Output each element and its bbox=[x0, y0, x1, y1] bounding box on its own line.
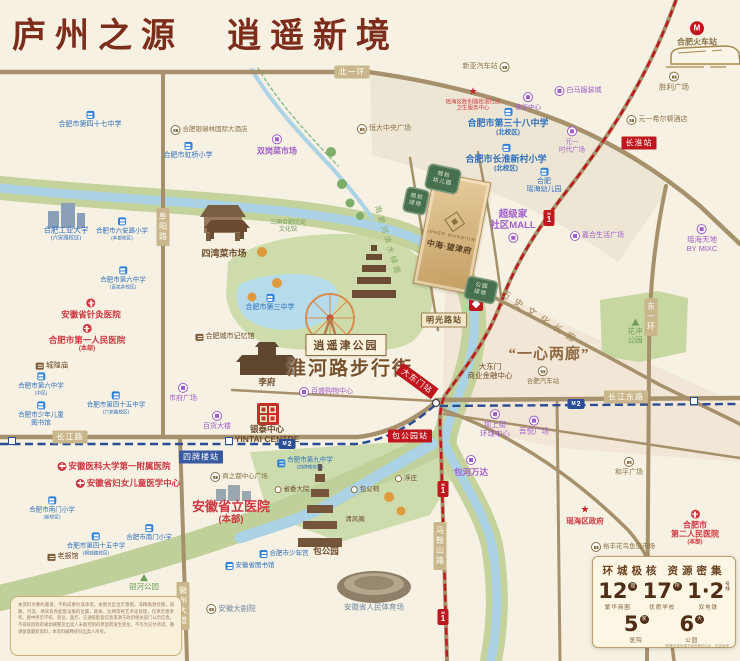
hospital-cross-icon bbox=[691, 510, 700, 519]
school-icon bbox=[92, 532, 100, 540]
map-poi: 安徽医科大学第一附属医院 bbox=[57, 461, 170, 471]
school-icon bbox=[266, 294, 274, 302]
poi-label: 包公园 bbox=[313, 546, 339, 556]
poi-label: 合肥市六安路小学(本部校区) bbox=[96, 227, 148, 240]
map-poi: 合肥市少年宫 bbox=[260, 550, 309, 558]
school-icon bbox=[504, 108, 512, 116]
plaza-icon bbox=[624, 457, 634, 467]
metro-station-marker bbox=[225, 437, 233, 445]
map-poi: 清风阁 bbox=[345, 516, 365, 524]
poi-label: 吾悦广场 bbox=[519, 428, 549, 437]
poi-label: 恒大中央广场 bbox=[369, 125, 411, 133]
mall-icon bbox=[299, 387, 309, 397]
museum-icon bbox=[196, 334, 204, 341]
poi-label: 元一时代广场 bbox=[559, 138, 585, 153]
poi-label: 安徽省妇女儿童医学中心 bbox=[87, 478, 181, 488]
metro-line-2-badge: M2 bbox=[568, 399, 585, 409]
map-poi: 合肥市第六中学(中区) bbox=[18, 372, 64, 395]
mall-icon bbox=[508, 233, 518, 243]
plaza-icon bbox=[669, 72, 679, 82]
poi-label: 合肥市第六中学(百花井校区) bbox=[100, 276, 146, 289]
map-poi: 合肥市少年儿童图书馆 bbox=[18, 401, 64, 426]
page-title: 庐州之源 逍遥新境 bbox=[12, 8, 399, 57]
school-icon bbox=[145, 524, 153, 532]
poi-label: 商之都中心广场 bbox=[222, 473, 268, 481]
map-poi: 合肥市六安路小学(本部校区) bbox=[96, 217, 148, 240]
poi-label: 合肥市第四十五中学(六安路校区) bbox=[87, 401, 146, 414]
map-poi: 商之都中心广场 bbox=[210, 472, 268, 482]
mall-icon bbox=[466, 455, 476, 465]
road-label: 东一环 bbox=[645, 298, 658, 336]
tree-icon bbox=[140, 574, 148, 581]
poi-label: 超级家社区MALL bbox=[490, 209, 535, 231]
poi-dot-icon bbox=[275, 487, 282, 494]
stats-panel: 环城极核 资源密集 12座繁华商圈17所优质学校1·2号线双地铁 5家医院6大公… bbox=[592, 556, 736, 648]
school-icon bbox=[502, 144, 510, 152]
poi-label: 安徽省图书馆 bbox=[236, 562, 275, 570]
map-poi: 白马服装城 bbox=[555, 86, 602, 96]
metro-station-label: 长淮站 bbox=[622, 137, 657, 150]
metro-station-label: 四牌楼站 bbox=[179, 451, 223, 464]
stat-label: 医院 bbox=[630, 636, 643, 644]
stat-label: 公园 bbox=[685, 636, 698, 644]
map-poi: 安徽省人民体育场 bbox=[344, 604, 404, 613]
metro-station-label: 明光路站 bbox=[421, 313, 467, 328]
map-poi: ★瑶海区政府 bbox=[566, 506, 604, 527]
map-poi: 包河万达 bbox=[454, 455, 488, 477]
poi-label: 裕丰花鸟鱼虫市场 bbox=[603, 543, 655, 551]
school-icon bbox=[37, 372, 45, 380]
hospital-cross-icon bbox=[86, 298, 95, 307]
map-poi: 李府 bbox=[258, 377, 275, 387]
map-poi: 三国合肥历史文化馆 bbox=[270, 220, 306, 234]
map-poi: 合肥市南门小学(新校区) bbox=[29, 496, 75, 519]
poi-label: 老报馆 bbox=[58, 553, 79, 561]
stadium-illustration bbox=[337, 571, 411, 603]
map-poi: 浮庄 bbox=[395, 475, 417, 483]
poi-label: 合肥市第九中学(四牌楼校区) bbox=[287, 456, 333, 469]
poi-label: 三国合肥历史文化馆 bbox=[270, 220, 306, 234]
map-poi: 元一时代广场 bbox=[559, 126, 585, 153]
poi-label: 合肥城市记忆馆 bbox=[206, 333, 255, 341]
poi-label: 四湾菜市场 bbox=[201, 249, 246, 260]
poi-label: 合肥市第三中学 bbox=[246, 304, 295, 312]
mall-icon bbox=[567, 126, 577, 136]
poi-label: 清风阁 bbox=[345, 516, 365, 524]
mall-icon bbox=[529, 416, 539, 426]
map-poi: 合肥市第四十七中学 bbox=[59, 111, 122, 129]
map-poi: 合肥市第九中学(四牌楼校区) bbox=[277, 456, 333, 469]
metro-line-1-badge: M1 bbox=[438, 609, 449, 625]
metro-line-2-badge: M2 bbox=[279, 439, 296, 449]
poi-dot-icon bbox=[351, 487, 358, 494]
map-poi: 合肥市虹桥小学 bbox=[164, 142, 213, 160]
school-icon bbox=[37, 401, 45, 409]
poi-label: 省委大院 bbox=[284, 486, 310, 494]
plaza-icon bbox=[206, 604, 216, 614]
hospital-cross-icon bbox=[57, 461, 66, 470]
poi-dot-icon bbox=[395, 476, 402, 483]
map-poi: 四湾菜市场 bbox=[201, 249, 246, 260]
poi-label: 百盛购物中心 bbox=[311, 388, 353, 396]
metro-station-marker bbox=[690, 397, 698, 405]
map-poi: 百盛购物中心 bbox=[299, 387, 353, 397]
mall-icon bbox=[523, 92, 533, 102]
mall-icon bbox=[178, 383, 188, 393]
map-poi: 安徽省针灸医院 bbox=[61, 298, 121, 319]
map-poi: 元一希尔顿酒店 bbox=[627, 115, 688, 125]
poi-label: 合肥银瑞林国际大酒店 bbox=[183, 126, 248, 134]
poi-label: 李府 bbox=[258, 377, 275, 387]
map-poi: 合肥市南门小学 bbox=[126, 524, 172, 542]
poi-label: 白马服装城 bbox=[567, 87, 602, 95]
poi-label: 城隍庙 bbox=[46, 362, 69, 371]
map-poi: 合肥瑶海幼儿园 bbox=[527, 168, 562, 195]
mall-icon bbox=[555, 86, 565, 96]
school-icon bbox=[118, 217, 126, 225]
plaza-icon bbox=[538, 366, 548, 376]
poi-label: 包河万达 bbox=[454, 467, 488, 477]
poi-label: 银河公园 bbox=[129, 583, 159, 592]
school-icon bbox=[226, 562, 234, 570]
landmark-label: 淮河路步行街 bbox=[287, 354, 413, 381]
map-poi: 裕丰花鸟鱼虫市场 bbox=[591, 542, 655, 552]
map-poi: 合肥市第四十五中学(六安路校区) bbox=[87, 391, 146, 414]
poi-label: 合肥市少年宫 bbox=[270, 550, 309, 558]
plaza-icon bbox=[171, 125, 181, 135]
school-icon bbox=[260, 550, 268, 558]
map-poi: 安徽省立医院(本部) bbox=[192, 499, 270, 525]
map-poi: 合肥市第六中学(百花井校区) bbox=[100, 266, 146, 289]
poi-label: 安徽省立医院(本部) bbox=[192, 499, 270, 525]
stat-item: 1·2号线双地铁 bbox=[687, 581, 730, 611]
plaza-icon bbox=[500, 62, 510, 72]
map-poi: 超级家社区MALL bbox=[490, 209, 535, 243]
plaza-icon bbox=[357, 124, 367, 134]
map-poi: 合肥市第一人民医院(本部) bbox=[49, 324, 126, 352]
poi-label: 花冲公园 bbox=[628, 328, 643, 346]
map-poi: 安徽省妇女儿童医学中心 bbox=[76, 478, 181, 488]
map-poi: 合肥银瑞林国际大酒店 bbox=[171, 125, 248, 135]
poi-label: 合肥市虹桥小学 bbox=[164, 152, 213, 160]
mall-icon bbox=[570, 231, 580, 241]
poi-label: 和平广场 bbox=[615, 469, 643, 477]
poi-label: 安徽大剧院 bbox=[218, 605, 256, 614]
map-poi: 百货大楼 bbox=[203, 411, 231, 431]
government-star-icon: ★ bbox=[581, 506, 590, 516]
poi-label: 合肥市第二人民医院(本部) bbox=[671, 521, 719, 547]
plaza-icon bbox=[591, 542, 601, 552]
map-poi: 嘉合生活广场 bbox=[570, 231, 624, 241]
poi-label: 安徽省人民体育场 bbox=[344, 604, 404, 613]
stat-number: 12座 bbox=[598, 581, 637, 602]
metro-logo-icon: M bbox=[690, 21, 704, 35]
disclaimer-text: 本资料为要约邀请，不构成要约或承诺。本图为区位示意图，非精确测绘图，道路、河流、… bbox=[10, 596, 182, 656]
school-icon bbox=[48, 496, 56, 504]
stat-item: 12座繁华商圈 bbox=[598, 581, 637, 611]
road-label: 长江东路 bbox=[604, 391, 648, 404]
poi-label: 安徽省针灸医院 bbox=[61, 309, 121, 319]
poi-label: 合肥市第四十七中学 bbox=[59, 121, 122, 129]
road-label: 马鞍山路 bbox=[434, 522, 447, 570]
mall-icon bbox=[490, 409, 500, 419]
map-poi: 安徽省图书馆 bbox=[226, 562, 275, 570]
project-ornament-icon bbox=[444, 211, 465, 232]
poi-label: 双岗菜市场 bbox=[257, 146, 297, 155]
poi-label: 包公祠 bbox=[360, 486, 380, 494]
stat-number: 17所 bbox=[643, 581, 682, 602]
stat-number: 1·2号线 bbox=[687, 581, 730, 602]
stat-item: 17所优质学校 bbox=[643, 581, 682, 611]
government-star-icon: ★ bbox=[469, 88, 478, 98]
poi-label: 元一希尔顿酒店 bbox=[639, 116, 688, 124]
stat-label: 双地铁 bbox=[699, 603, 719, 611]
map-poi: 银河公园 bbox=[129, 574, 159, 592]
tree-icon bbox=[631, 319, 639, 326]
mall-icon bbox=[272, 134, 282, 144]
map-poi: 吾悦广场 bbox=[519, 416, 549, 437]
map-poi: 合肥市第二人民医院(本部) bbox=[671, 510, 719, 547]
poi-label: 市府广场 bbox=[169, 395, 197, 403]
poi-label: 合肥市少年儿童图书馆 bbox=[18, 411, 64, 426]
map-poi: 大东门商业金融中心 bbox=[468, 363, 513, 381]
mall-icon bbox=[697, 224, 707, 234]
map-poi: 城隍庙 bbox=[36, 362, 69, 371]
school-icon bbox=[86, 111, 94, 119]
poi-label: 大东门商业金融中心 bbox=[468, 363, 513, 381]
poi-label: 合肥市第三十八中学(北校区) bbox=[467, 118, 548, 136]
map-poi: 恒大中央广场 bbox=[357, 124, 411, 134]
yintai-seal-icon bbox=[257, 403, 279, 425]
road-label: 阜阳路 bbox=[157, 208, 170, 246]
map-poi: 包公祠 bbox=[351, 486, 380, 494]
school-icon bbox=[184, 142, 192, 150]
map-poi: 合肥汽车站 bbox=[527, 366, 560, 386]
plaza-icon bbox=[627, 115, 637, 125]
road-label: 北一环 bbox=[335, 66, 370, 79]
mall-icon bbox=[212, 411, 222, 421]
poi-label: 合肥工业大学(六安路校区) bbox=[44, 226, 89, 241]
stat-number: 5家 bbox=[624, 614, 649, 635]
metro-line-1-badge: M1 bbox=[438, 481, 449, 497]
stats-title: 环城极核 资源密集 bbox=[603, 563, 726, 578]
stat-label: 优质学校 bbox=[649, 603, 675, 611]
poi-label: 安徽医科大学第一附属医院 bbox=[68, 461, 170, 471]
map-poi: 胜利广场 bbox=[659, 72, 689, 93]
poi-label: 合肥市南门小学 bbox=[126, 534, 172, 542]
map-poi: 市府广场 bbox=[169, 383, 197, 403]
map-poi: 合肥市第三中学 bbox=[246, 294, 295, 312]
museum-icon bbox=[36, 363, 44, 370]
stat-number: 6大 bbox=[679, 614, 704, 635]
hospital-cross-icon bbox=[76, 478, 85, 487]
road-label: 长江路 bbox=[53, 431, 88, 444]
stat-item: 6大公园 bbox=[679, 614, 704, 644]
poi-label: 胜利广场 bbox=[659, 84, 689, 93]
map-poi: 安徽大剧院 bbox=[206, 604, 256, 614]
museum-icon bbox=[48, 554, 56, 561]
plaza-icon bbox=[210, 472, 220, 482]
map-poi: 合肥城市记忆馆 bbox=[196, 333, 255, 341]
school-icon bbox=[119, 266, 127, 274]
school-icon bbox=[277, 459, 285, 467]
map-poi: 瑶海天地BY MIXC bbox=[687, 224, 718, 254]
stat-label: 繁华商圈 bbox=[605, 603, 631, 611]
map-poi: 和平广场 bbox=[615, 457, 643, 477]
poi-label: 合肥市第一人民医院(本部) bbox=[49, 335, 126, 352]
map-poi: 新亚汽车站 bbox=[463, 62, 510, 72]
poi-label: 合肥瑶海幼儿园 bbox=[527, 178, 562, 195]
map-poi: 包公园 bbox=[313, 546, 339, 556]
metro-line-1-badge: M1 bbox=[544, 210, 555, 226]
poi-label: 新亚汽车站 bbox=[463, 63, 498, 71]
hospital-cross-icon bbox=[82, 324, 91, 333]
interchange-marker bbox=[433, 400, 440, 407]
map-poi: 坝上街环球中心 bbox=[480, 409, 510, 439]
map-poi: 老报馆 bbox=[48, 553, 79, 561]
poi-label: 嘉合生活广场 bbox=[582, 232, 624, 240]
school-icon bbox=[112, 391, 120, 399]
map-poi: 合肥工业大学(六安路校区) bbox=[44, 226, 89, 241]
train-sketch-illustration bbox=[666, 46, 740, 67]
map-poi: 花冲公园 bbox=[628, 319, 643, 346]
poi-label: 瑶海区政府 bbox=[566, 518, 604, 527]
poi-label: 浮庄 bbox=[404, 475, 417, 483]
map-canvas: 庐州之源 逍遥新境 INNER MANSION 中海·望津府 规划幼儿园规划绿地… bbox=[0, 0, 740, 661]
map-poi: 双岗菜市场 bbox=[257, 134, 297, 155]
poi-label: 坝上街环球中心 bbox=[480, 421, 510, 439]
poi-label: 合肥汽车站 bbox=[527, 378, 560, 386]
metro-station-marker bbox=[8, 437, 16, 445]
map-poi: M合肥火车站 bbox=[677, 21, 717, 46]
poi-label: 合肥市第六中学(中区) bbox=[18, 382, 64, 395]
stats-footnote: *配套信息来源于政府规划公示，仅供参考 bbox=[665, 644, 729, 649]
metro-station-label: 包公园站 bbox=[388, 430, 432, 443]
map-poi: 省委大院 bbox=[275, 486, 310, 494]
poi-label: 合肥市南门小学(新校区) bbox=[29, 506, 75, 519]
poi-label: 百货大楼 bbox=[203, 423, 231, 431]
school-icon bbox=[540, 168, 548, 176]
stat-item: 5家医院 bbox=[624, 614, 649, 644]
poi-label: 瑶海天地BY MIXC bbox=[687, 236, 718, 254]
map-poi: 合肥市第三十八中学(北校区) bbox=[467, 108, 548, 136]
poi-label: 合肥火车站 bbox=[677, 37, 717, 46]
